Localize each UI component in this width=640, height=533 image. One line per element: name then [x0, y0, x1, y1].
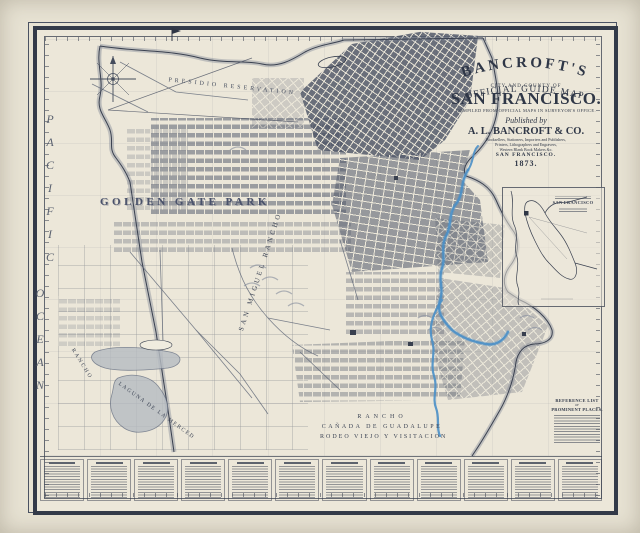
label-rancho-line1: RANCHO: [330, 414, 434, 420]
index-panel: [40, 456, 602, 501]
inset-linework: [503, 188, 604, 306]
index-column: [464, 459, 508, 501]
title-published-by: Published by: [438, 117, 614, 125]
reference-paragraph-micro: [554, 415, 600, 443]
title-year: 1873.: [438, 160, 614, 168]
label-rancho-line3: RODEO VIEJO Y VISITACION: [320, 434, 444, 440]
inset-title-micro-bottom: [559, 207, 587, 212]
reference-list: REFERENCE LIST OF PROMINENT PLACES.: [550, 398, 604, 443]
index-column: [417, 459, 461, 501]
title-compiled: COMPILED FROM OFFICIAL MAPS IN SURVEYOR'…: [438, 109, 614, 113]
inset-map: SAN FRANCISCO: [502, 187, 605, 307]
index-column: [134, 459, 178, 501]
reference-heading-line3: PROMINENT PLACES.: [550, 407, 604, 412]
label-rancho-line2: CAÑADA DE GUADALUPE: [320, 424, 444, 430]
map-sheet: BANCROFT'S OFFICIAL GUIDE MAP PACIFIC OC…: [0, 0, 640, 533]
grid-outside-lands: [58, 245, 308, 450]
index-column: [370, 459, 414, 501]
index-column: [87, 459, 131, 501]
grid-mission-south: [345, 272, 445, 334]
grid-cow-hollow: [252, 78, 304, 128]
label-golden-gate-park: GOLDEN GATE PARK: [100, 197, 270, 208]
title-city: SAN FRANCISCO.: [438, 90, 614, 107]
inset-sf-marker: [524, 211, 529, 216]
index-column: [181, 459, 225, 501]
index-column: [558, 459, 602, 501]
grid-sunset: [113, 220, 351, 252]
inset-title: SAN FRANCISCO: [549, 201, 597, 206]
index-column: [322, 459, 366, 501]
label-ocean: OCEAN: [34, 286, 46, 401]
title-publisher: A. L. BANCROFT & CO.: [438, 127, 614, 138]
index-column: [275, 459, 319, 501]
index-column: [40, 459, 84, 501]
grid-parkside: [58, 296, 120, 346]
index-column: [511, 459, 555, 501]
inset-title-micro-top: [555, 196, 591, 199]
index-column: [228, 459, 272, 501]
label-pacific: PACIFIC: [44, 112, 56, 273]
title-publisher-city: SAN FRANCISCO.: [438, 153, 614, 159]
